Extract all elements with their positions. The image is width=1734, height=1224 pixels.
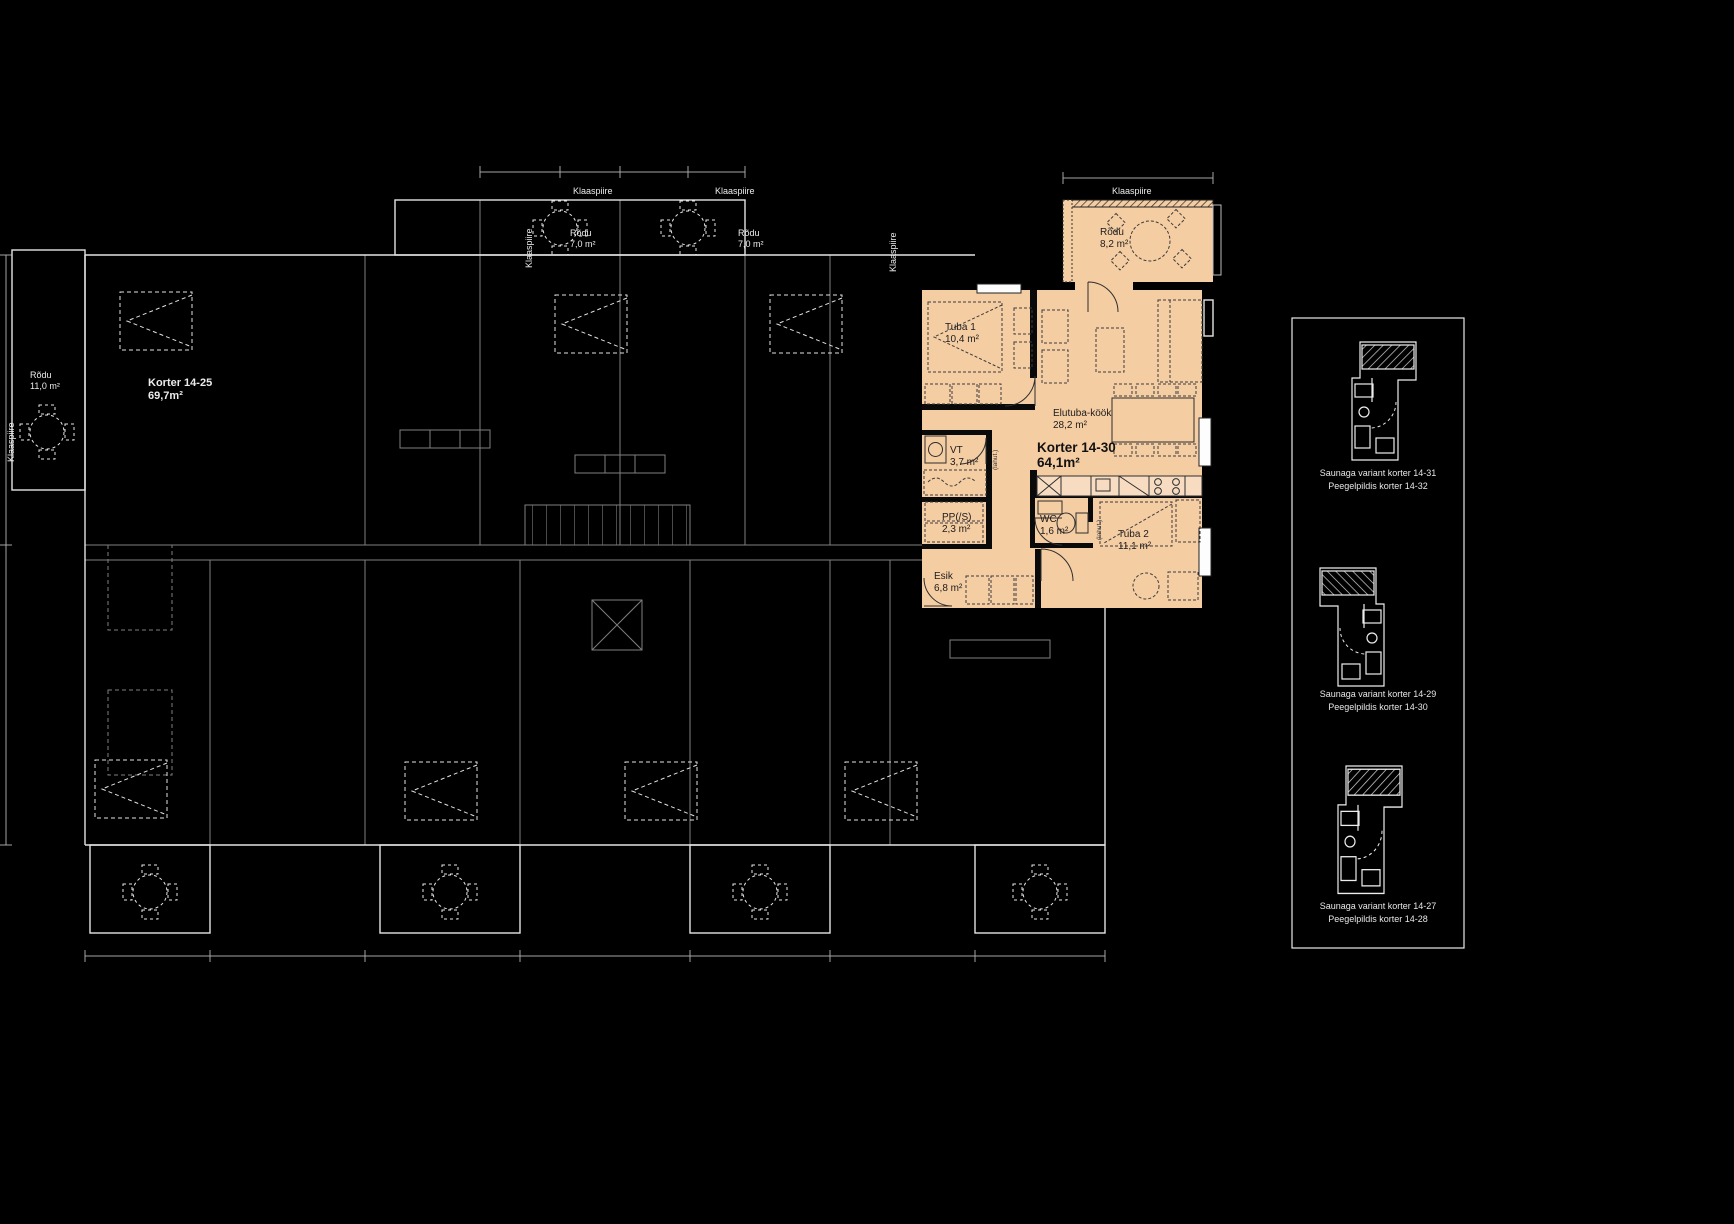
room-area: 1,6 m² (1040, 526, 1068, 538)
apartment-number: Korter 14-30 (1037, 440, 1116, 455)
glass-railing-label-1: Klaaspiire (573, 186, 613, 197)
glass-railing-label-left: Klaaspiire (6, 422, 17, 462)
apartment-area: 64,1m² (1037, 455, 1116, 470)
variant-sidebar-box (1292, 318, 1464, 948)
room-name: Esik (934, 571, 962, 583)
room-name: Elutuba-köök (1053, 408, 1111, 420)
room-label-elutuba-kook: Elutuba-köök 28,2 m² (1053, 408, 1111, 432)
balcony-label-2: Rõdu 7,0 m² (738, 228, 764, 249)
glass-railing-label-2: Klaaspiire (715, 186, 755, 197)
variant-caption-3: Saunaga variant korter 14-27 Peegelpildi… (1288, 900, 1468, 925)
glass-railing-label-mid: Klaaspiire (888, 232, 899, 272)
room-name: PP(/S) (942, 512, 971, 524)
room-area: 8,2 m² (1100, 239, 1128, 251)
glass-railing-label-3: Klaaspiire (1112, 186, 1152, 197)
room-label-pps: PP(/S) 2,3 m² (942, 512, 971, 536)
room-name: WC (1040, 514, 1068, 526)
variant-caption-1: Saunaga variant korter 14-31 Peegelpildi… (1288, 467, 1468, 492)
neighbor-apartment-label: Korter 14-25 69,7m² (148, 377, 212, 403)
room-area: 11,1 m² (1118, 541, 1151, 553)
room-label-tuba-1: Tuba 1 10,4 m² (945, 322, 979, 346)
room-area: 28,2 m² (1053, 420, 1111, 432)
room-name: Tuba 2 (1118, 529, 1151, 541)
room-name: VT (950, 445, 978, 457)
variant-caption-2: Saunaga variant korter 14-29 Peegelpildi… (1288, 688, 1468, 713)
glass-railing-label-wing: Klaaspiire (524, 228, 535, 268)
room-name: Tuba 1 (945, 322, 979, 334)
floor-plan-page: Rõdu 8,2 m² Tuba 1 10,4 m² Elutuba-köök … (0, 0, 1734, 1224)
room-label-rodu: Rõdu 8,2 m² (1100, 227, 1128, 251)
partition-label-vt: (lahut.) (992, 450, 1000, 470)
apartment-title: Korter 14-30 64,1m² (1037, 440, 1116, 470)
partition-label-wc: (lahut.) (1096, 520, 1104, 540)
room-label-wc: WC 1,6 m² (1040, 514, 1068, 538)
room-area: 3,7 m² (950, 457, 978, 469)
room-label-esik: Esik 6,8 m² (934, 571, 962, 595)
floor-plan-drawing (0, 0, 1734, 1224)
room-label-tuba-2: Tuba 2 11,1 m² (1118, 529, 1151, 553)
room-area: 10,4 m² (945, 334, 979, 346)
room-name: Rõdu (1100, 227, 1128, 239)
balcony-label-1: Rõdu 7,0 m² (570, 228, 596, 249)
room-area: 2,3 m² (942, 524, 971, 536)
room-label-vt: VT 3,7 m² (950, 445, 978, 469)
room-area: 6,8 m² (934, 583, 962, 595)
apartment-korter-14-30[interactable] (922, 200, 1221, 608)
balcony-label-left: Rõdu 11,0 m² (30, 370, 60, 391)
